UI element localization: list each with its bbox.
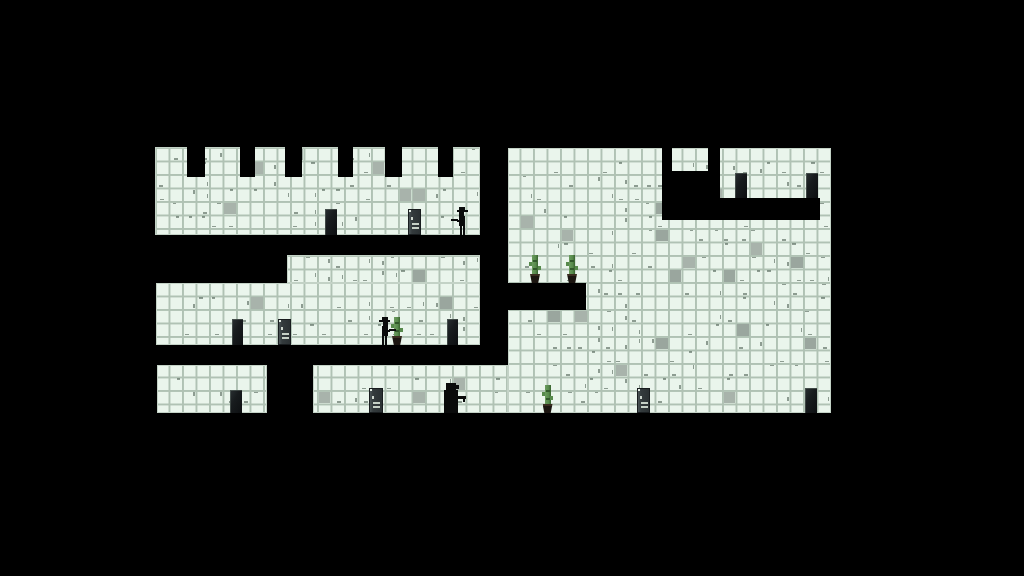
tile-crack-mark: [288, 304, 290, 308]
cactus-stk2: [533, 268, 537, 270]
tile-crack-mark: [523, 176, 527, 178]
tile-crack-mark: [382, 261, 384, 265]
tile-crack-mark: [782, 239, 786, 241]
gray-tile: [251, 297, 263, 309]
tile-crack-mark: [337, 307, 341, 309]
crenel-notch-2: [240, 147, 255, 177]
tile-crack-mark: [558, 244, 560, 248]
tile-crack-mark: [419, 320, 423, 322]
tile-crack-mark: [364, 401, 368, 403]
tile-crack-mark: [348, 320, 352, 322]
tile-region-bottom-mid-block: [313, 365, 508, 413]
tile-crack-mark: [625, 345, 627, 349]
tile-crack-mark: [625, 180, 627, 184]
door-corner-dot: [638, 389, 640, 391]
tile-crack-mark: [782, 172, 786, 174]
tile-crack-mark: [350, 185, 354, 187]
tile-crack-mark: [598, 369, 600, 373]
tile-crack-mark: [193, 190, 195, 194]
tile-crack-mark: [787, 182, 789, 186]
tile-crack-mark: [760, 169, 762, 173]
cactus-stk1: [570, 260, 574, 262]
tile-crack-mark: [644, 374, 648, 376]
tile-crack-mark: [293, 226, 297, 228]
tile-crack-mark: [767, 162, 771, 164]
gray-tile: [683, 257, 695, 269]
tile-region-mid-band-upper: [287, 255, 480, 283]
tile-crack-mark: [635, 199, 639, 201]
gun: [452, 219, 459, 221]
tile-crack-mark: [387, 185, 391, 187]
tile-crack-mark: [780, 361, 784, 363]
tile-crack-mark: [315, 193, 317, 197]
door-sign-mark: [412, 223, 419, 225]
gray-tile: [413, 270, 425, 282]
gray-tile: [413, 392, 425, 404]
tile-crack-mark: [592, 351, 596, 353]
tile-crack-mark: [607, 361, 611, 363]
tile-crack-mark: [310, 324, 314, 326]
tile-crack-mark: [619, 199, 623, 201]
tile-crack-mark: [474, 307, 478, 309]
tile-crack-mark: [825, 361, 829, 363]
tile-crack-mark: [531, 194, 533, 198]
tile-crack-mark: [589, 253, 593, 255]
cactus-stk2: [570, 268, 574, 270]
tile-crack-mark: [787, 397, 789, 401]
tile-crack-mark: [744, 374, 748, 376]
cactus-stem: [532, 255, 538, 274]
tile-crack-mark: [742, 239, 746, 241]
tile-crack-mark: [193, 392, 195, 396]
tile-crack-mark: [727, 378, 731, 380]
tile-crack-mark: [632, 320, 636, 322]
tile-crack-mark: [823, 347, 827, 349]
tile-crack-mark: [733, 166, 735, 170]
gun: [389, 329, 396, 331]
gray-tile: [724, 270, 736, 282]
door-sign-mark: [282, 333, 289, 335]
tile-crack-mark: [603, 172, 607, 174]
tile-crack-mark: [618, 280, 622, 282]
gray-tile: [656, 230, 668, 242]
door-handle-dot: [281, 327, 283, 330]
gray-tile: [737, 324, 749, 336]
tile-crack-mark: [415, 378, 419, 380]
tile-crack-mark: [787, 304, 789, 308]
tile-crack-mark: [725, 243, 729, 245]
cactus-platform-left: [529, 255, 541, 283]
dark-door-mid-left: [232, 319, 243, 345]
tile-crack-mark: [787, 262, 789, 266]
cactus-nub-l: [529, 262, 532, 266]
tile-crack-mark: [423, 302, 425, 306]
gray-tile: [440, 297, 452, 309]
tile-crack-mark: [797, 185, 801, 187]
tile-crack-mark: [203, 212, 207, 214]
cactus-nub-l: [391, 324, 394, 328]
tile-crack-mark: [828, 277, 830, 281]
tile-crack-mark: [619, 162, 623, 164]
tile-crack-mark: [244, 401, 248, 403]
tile-crack-mark: [553, 365, 557, 367]
dark-door-bottom-left: [230, 390, 242, 413]
cactus-stk2: [395, 330, 399, 332]
tile-crack-mark: [625, 208, 627, 212]
tile-crack-mark: [436, 194, 438, 198]
tile-crack-mark: [355, 398, 357, 402]
tile-crack-mark: [366, 199, 370, 201]
cactus-pot: [530, 274, 540, 283]
gray-tile: [724, 392, 736, 404]
tile-crack-mark: [821, 297, 825, 299]
tile-crack-mark: [585, 384, 587, 388]
tile-crack-mark: [294, 212, 298, 214]
tile-crack-mark: [382, 271, 384, 275]
tile-crack-mark: [663, 378, 667, 380]
gray-tile: [548, 311, 560, 323]
tile-crack-mark: [820, 203, 824, 205]
tile-crack-mark: [288, 193, 290, 197]
door-corner-dot: [370, 389, 372, 391]
tile-crack-mark: [177, 378, 181, 380]
tile-crack-mark: [294, 280, 298, 282]
tile-crack-mark: [591, 266, 595, 268]
tile-crack-mark: [688, 334, 692, 336]
tile-crack-mark: [698, 388, 702, 390]
tile-crack-mark: [685, 293, 689, 295]
tile-crack-mark: [230, 189, 234, 191]
tile-crack-mark: [472, 149, 476, 151]
tile-crack-mark: [720, 315, 722, 319]
cactus-stem: [545, 385, 551, 404]
tile-crack-mark: [808, 334, 812, 336]
tile-crack-mark: [740, 280, 744, 282]
leg-left: [382, 336, 384, 346]
tile-crack-mark: [362, 388, 366, 390]
tile-crack-mark: [658, 401, 662, 403]
tile-crack-mark: [706, 341, 708, 345]
tile-crack-mark: [450, 314, 452, 318]
tile-crack-mark: [639, 339, 641, 343]
cactus-platform-right: [566, 255, 578, 283]
gun-grip: [463, 399, 465, 402]
tile-crack-mark: [207, 182, 209, 186]
cactus-bottom-band: [542, 385, 553, 413]
tile-crack-mark: [564, 216, 568, 218]
door-handle-dot: [411, 217, 413, 220]
tile-crack-mark: [612, 370, 614, 374]
tile-crack-mark: [606, 347, 610, 349]
gray-tile: [224, 203, 236, 215]
tile-crack-mark: [315, 210, 317, 214]
crenel-notch-3: [285, 147, 302, 177]
tile-crack-mark: [301, 304, 303, 308]
tile-region-mid-band-lower: [156, 283, 480, 345]
tile-crack-mark: [649, 230, 653, 232]
tile-crack-mark: [369, 259, 371, 263]
tile-crack-mark: [274, 182, 276, 186]
cactus-stem: [394, 317, 400, 336]
tile-crack-mark: [387, 388, 391, 390]
tile-crack-mark: [407, 307, 411, 309]
tile-crack-mark: [254, 189, 258, 191]
tile-crack-mark: [174, 158, 178, 160]
leg-right: [385, 336, 387, 346]
cactus-nub-r: [550, 396, 553, 400]
tile-crack-mark: [220, 392, 222, 396]
tile-crack-mark: [689, 351, 693, 353]
tile-crack-mark: [760, 342, 762, 346]
tile-crack-mark: [612, 264, 614, 268]
door-sign-mark: [373, 402, 380, 404]
gray-tile: [616, 365, 628, 377]
tile-crack-mark: [315, 222, 317, 226]
tile-crack-mark: [369, 316, 371, 320]
tile-crack-mark: [690, 230, 694, 232]
door-handle-dot: [372, 396, 374, 399]
dark-door-top-band: [325, 209, 337, 235]
tile-crack-mark: [598, 338, 600, 342]
cactus-pot: [567, 274, 577, 283]
tile-crack-mark: [564, 243, 568, 245]
cactus-platform: [506, 283, 586, 310]
tile-crack-mark: [401, 270, 405, 272]
tile-crack-mark: [607, 311, 611, 313]
alcove-door-a: [735, 173, 747, 198]
tile-crack-mark: [322, 334, 326, 336]
body: [444, 390, 458, 413]
tile-crack-mark: [770, 365, 774, 367]
gray-tile: [562, 230, 574, 242]
tile-crack-mark: [268, 334, 272, 336]
tile-crack-mark: [648, 266, 652, 268]
tile-crack-mark: [364, 172, 368, 174]
tile-crack-mark: [207, 194, 209, 198]
tile-crack-mark: [743, 297, 747, 299]
tile-crack-mark: [461, 172, 465, 174]
tile-crack-mark: [336, 189, 340, 191]
tile-crack-mark: [670, 361, 674, 363]
tile-crack-mark: [604, 388, 608, 390]
tile-crack-mark: [792, 243, 796, 245]
tile-crack-mark: [328, 277, 330, 281]
tile-crack-mark: [495, 392, 499, 394]
tile-crack-mark: [774, 301, 776, 305]
tile-crack-mark: [463, 327, 465, 331]
tile-crack-mark: [212, 226, 216, 228]
tile-crack-mark: [822, 284, 826, 286]
tile-crack-mark: [797, 280, 801, 282]
gray-tile: [319, 392, 331, 404]
tile-crack-mark: [337, 401, 341, 403]
tile-crack-mark: [774, 259, 776, 263]
tile-crack-mark: [554, 172, 558, 174]
tile-crack-mark: [820, 172, 824, 174]
tile-crack-mark: [751, 230, 755, 232]
dark-door-mid-right: [447, 319, 458, 345]
alcove-door-b: [806, 173, 818, 198]
tile-crack-mark: [202, 216, 206, 218]
tile-crack-mark: [189, 216, 193, 218]
tile-crack-mark: [160, 199, 164, 201]
tile-crack-mark: [612, 231, 614, 235]
tile-crack-mark: [724, 239, 728, 241]
tile-crack-mark: [528, 320, 532, 322]
door-corner-dot: [409, 210, 411, 212]
leg-right: [460, 226, 462, 236]
tile-crack-mark: [766, 324, 770, 326]
tile-crack-mark: [811, 162, 815, 164]
tile-crack-mark: [625, 304, 627, 308]
tile-crack-mark: [567, 347, 571, 349]
cactus-stk1: [546, 390, 550, 392]
crenel-notch-1: [187, 147, 205, 177]
tile-crack-mark: [460, 280, 464, 282]
tile-crack-mark: [193, 304, 195, 308]
ear: [455, 385, 459, 389]
cactus-stk1: [395, 322, 399, 324]
tile-region-bottom-left-block: [157, 365, 267, 413]
upper-right-notch-b: [708, 148, 720, 173]
tile-crack-mark: [632, 253, 636, 255]
tile-crack-mark: [728, 320, 732, 322]
tile-crack-mark: [477, 192, 479, 196]
tile-crack-mark: [716, 324, 720, 326]
cactus-nub-r: [575, 266, 578, 270]
tile-crack-mark: [463, 261, 465, 265]
gray-tile: [400, 189, 412, 201]
tile-crack-mark: [625, 379, 627, 383]
tile-crack-mark: [336, 203, 340, 205]
tile-crack-mark: [612, 327, 614, 331]
tile-crack-mark: [658, 226, 662, 228]
door-corner-dot: [279, 320, 281, 322]
tile-crack-mark: [598, 326, 600, 330]
tile-crack-mark: [636, 293, 640, 295]
tile-crack-mark: [598, 289, 600, 293]
tile-crack-mark: [639, 330, 641, 334]
tile-crack-mark: [220, 153, 222, 157]
tile-crack-mark: [441, 216, 445, 218]
tile-crack-mark: [679, 385, 681, 389]
tile-crack-mark: [159, 185, 163, 187]
tile-crack-mark: [553, 347, 557, 349]
tile-crack-mark: [369, 153, 371, 157]
cactus-mid-band: [391, 317, 403, 345]
tile-crack-mark: [443, 189, 447, 191]
sign-door-top-band: [408, 209, 421, 235]
tile-crack-mark: [625, 218, 627, 222]
tile-crack-mark: [810, 280, 814, 282]
tile-crack-mark: [342, 275, 344, 279]
tile-crack-mark: [274, 165, 276, 169]
tile-crack-mark: [306, 257, 310, 259]
gray-tile: [791, 257, 803, 269]
tile-crack-mark: [353, 280, 357, 282]
tile-crack-mark: [215, 334, 219, 336]
upper-right-shelf: [708, 198, 820, 220]
tile-crack-mark: [793, 293, 797, 295]
tile-crack-mark: [739, 347, 743, 349]
tile-crack-mark: [293, 334, 297, 336]
cactus-stk2: [546, 398, 550, 400]
gray-tile: [521, 216, 533, 228]
tile-crack-mark: [363, 280, 367, 282]
crenel-notch-5: [385, 147, 402, 177]
tile-crack-mark: [396, 273, 398, 277]
tile-crack-mark: [578, 347, 582, 349]
tile-crack-mark: [328, 259, 330, 263]
tile-crack-mark: [767, 270, 771, 272]
tile-crack-mark: [744, 226, 748, 228]
tile-crack-mark: [566, 374, 570, 376]
gray-tile: [670, 270, 682, 282]
tile-crack-mark: [828, 397, 830, 401]
tile-crack-mark: [612, 194, 614, 198]
bear-sprite-gunman-bottom-band: [444, 383, 465, 413]
sign-door-bottom-b: [637, 388, 650, 413]
tile-crack-mark: [185, 334, 189, 336]
tile-crack-mark: [618, 293, 622, 295]
tile-crack-mark: [713, 270, 717, 272]
tile-crack-mark: [604, 293, 608, 295]
tile-crack-mark: [568, 392, 572, 394]
tile-crack-mark: [526, 392, 530, 394]
tile-crack-mark: [634, 185, 638, 187]
cowboy-sprite-gunman-top-band: [456, 207, 470, 235]
game-stage[interactable]: [0, 0, 1024, 576]
cactus-stem: [569, 255, 575, 274]
gray-tile: [656, 338, 668, 350]
tile-crack-mark: [369, 302, 371, 306]
tile-crack-mark: [322, 189, 326, 191]
tile-crack-mark: [342, 222, 344, 226]
tile-crack-mark: [315, 273, 317, 277]
gray-tile: [413, 189, 425, 201]
tile-crack-mark: [649, 216, 653, 218]
tile-crack-mark: [729, 374, 733, 376]
tile-crack-mark: [477, 258, 479, 262]
tile-crack-mark: [616, 361, 620, 363]
tile-crack-mark: [364, 334, 368, 336]
cactus-stk1: [533, 260, 537, 262]
cactus-nub-l: [542, 392, 545, 396]
upper-right-notch-a: [662, 148, 672, 173]
tile-crack-mark: [544, 209, 546, 213]
tile-crack-mark: [782, 284, 786, 286]
letterbox-background: [0, 0, 1024, 576]
dark-door-bottom-right: [805, 388, 817, 413]
sign-door-mid-band: [278, 319, 291, 345]
gray-tile: [575, 311, 587, 323]
tile-crack-mark: [699, 239, 703, 241]
sign-door-bottom-a: [369, 388, 383, 413]
tile-crack-mark: [430, 334, 434, 336]
tile-crack-mark: [646, 203, 650, 205]
tile-crack-mark: [752, 257, 756, 259]
tile-crack-mark: [693, 163, 695, 167]
cactus-nub-r: [538, 266, 541, 270]
tile-crack-mark: [795, 365, 799, 367]
tile-crack-mark: [355, 217, 357, 221]
tile-crack-mark: [173, 203, 177, 205]
crenel-notch-6: [438, 147, 453, 177]
tile-crack-mark: [590, 378, 594, 380]
tile-crack-mark: [247, 301, 249, 305]
door-sign-mark: [412, 227, 419, 229]
door-sign-mark: [373, 406, 380, 408]
